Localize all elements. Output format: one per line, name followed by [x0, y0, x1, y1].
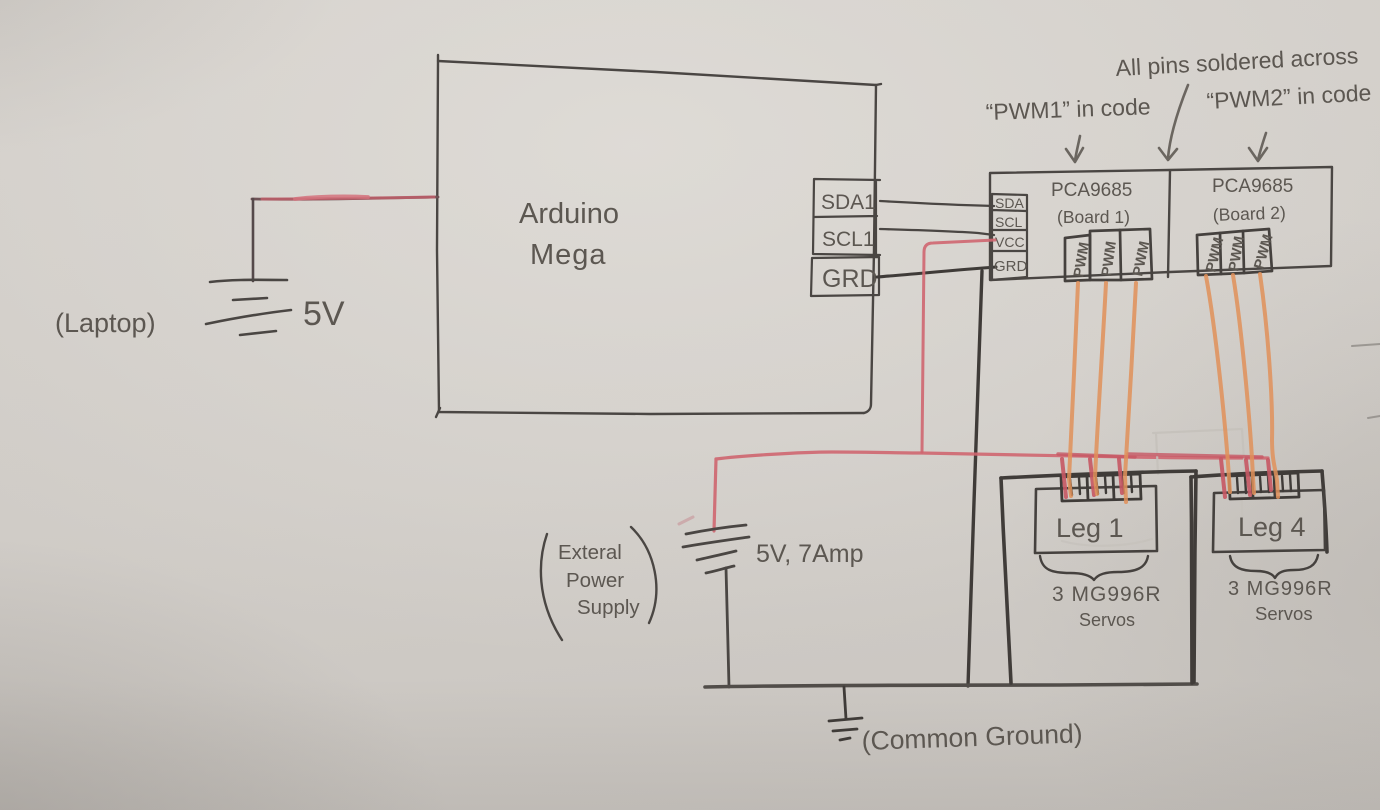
svg-text:Exteral: Exteral: [558, 541, 622, 564]
svg-text:GRD: GRD: [994, 258, 1028, 275]
svg-text:“PWM2” in code: “PWM2” in code: [1206, 79, 1372, 114]
svg-text:Leg 1: Leg 1: [1056, 513, 1124, 543]
svg-text:PWM: PWM: [1203, 236, 1227, 274]
svg-text:(Laptop): (Laptop): [55, 308, 156, 338]
svg-text:Servos: Servos: [1255, 603, 1313, 624]
svg-text:GRD: GRD: [822, 265, 878, 293]
svg-text:SCL: SCL: [995, 214, 1022, 230]
svg-text:Power: Power: [566, 569, 624, 592]
svg-text:5V, 7Amp: 5V, 7Amp: [756, 540, 863, 568]
svg-text:SDA1: SDA1: [821, 191, 876, 214]
svg-text:Supply: Supply: [577, 596, 640, 619]
svg-text:(Common Ground): (Common Ground): [861, 718, 1083, 756]
svg-text:3 MG996R: 3 MG996R: [1228, 578, 1333, 600]
svg-text:PCA9685: PCA9685: [1051, 180, 1132, 201]
svg-text:Mega: Mega: [530, 239, 607, 271]
svg-text:SDA: SDA: [995, 195, 1024, 211]
svg-text:SCL1: SCL1: [822, 228, 875, 251]
svg-text:PCA9685: PCA9685: [1212, 176, 1293, 197]
svg-text:All pins soldered across: All pins soldered across: [1115, 42, 1359, 81]
svg-text:(Board 1): (Board 1): [1057, 207, 1130, 227]
svg-text:PWM: PWM: [1099, 240, 1120, 277]
svg-text:3 MG996R: 3 MG996R: [1052, 583, 1162, 606]
svg-text:5V: 5V: [303, 295, 345, 333]
svg-text:Servos: Servos: [1079, 610, 1135, 630]
svg-text:Arduino: Arduino: [519, 198, 619, 230]
svg-text:Leg 4: Leg 4: [1238, 512, 1306, 542]
svg-text:“PWM1” in code: “PWM1” in code: [985, 93, 1151, 125]
svg-text:(Board 2): (Board 2): [1212, 202, 1286, 225]
svg-text:VCC: VCC: [995, 234, 1025, 250]
